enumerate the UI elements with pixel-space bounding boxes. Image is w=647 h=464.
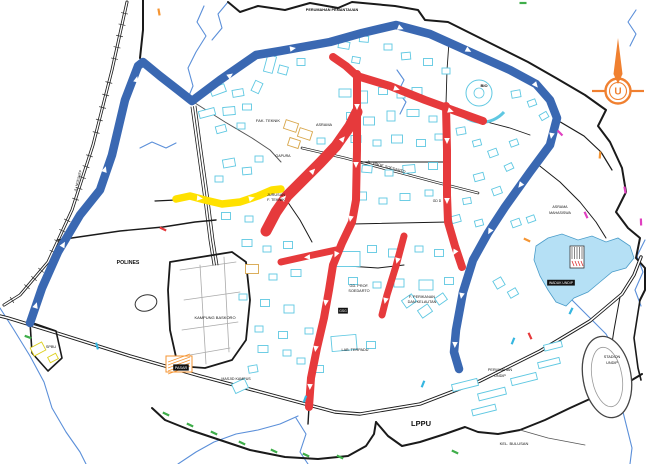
building-outline: [305, 328, 313, 334]
building-outline: [387, 111, 395, 121]
triple-road-a: [191, 107, 213, 265]
triple-road-b: [194, 107, 216, 266]
label-text: PASAR: [175, 366, 188, 370]
building-outline: [248, 365, 258, 373]
building-rect: [509, 139, 519, 147]
building-rect: [424, 59, 433, 66]
building-rect: [538, 357, 561, 368]
label-text: ASRAMA: [552, 205, 568, 209]
map-label-polines: POLINES: [117, 260, 140, 266]
building-outline: [222, 213, 231, 220]
building-rect: [425, 190, 433, 196]
building-rect: [246, 265, 259, 274]
building-rect: [248, 365, 258, 373]
map-tick: [160, 228, 166, 231]
building-rect: [245, 216, 253, 222]
map-label-soedarto: SOEDARTO: [348, 289, 369, 293]
lppu-boundary: [152, 408, 376, 459]
map-label-bio: BIO: [480, 83, 487, 88]
building-outline: [373, 282, 381, 288]
building-outline: [237, 123, 245, 129]
building-rect: [488, 148, 499, 158]
building-rect: [269, 274, 277, 280]
label-text: SPBU: [46, 345, 57, 349]
bio-circle-building: [466, 80, 492, 106]
building-outline: [418, 304, 433, 318]
east-road-1: [557, 120, 612, 170]
kampung-roads: [180, 257, 240, 364]
building-rect: [507, 288, 518, 299]
river: [628, 10, 636, 46]
building-outline: [362, 165, 373, 173]
map-tick: [512, 338, 515, 344]
map-tick: [600, 152, 601, 159]
building-outline: [284, 242, 293, 249]
label-text: F. TEKNIK: [267, 198, 285, 202]
building-rect: [243, 104, 252, 110]
building-outline: [463, 197, 472, 204]
label-text: GSG: [339, 309, 347, 313]
map-label-mahasiswa: MAHASISWA: [549, 211, 571, 215]
jurusan-south-road: [285, 198, 312, 242]
building-rect: [415, 246, 423, 252]
map-tick: [585, 212, 588, 218]
building-rect: [284, 305, 294, 313]
building-outline: [278, 65, 289, 75]
building-outline: [492, 186, 503, 196]
label-text: LPPU: [411, 419, 431, 428]
river: [188, 6, 206, 98]
building-outline: [384, 44, 392, 50]
building-outline: [255, 326, 263, 332]
map-tick: [524, 239, 530, 242]
building-rect: [387, 111, 395, 121]
building-rect: [279, 332, 288, 339]
building-outline: [452, 378, 479, 391]
east-road-2: [536, 163, 606, 238]
stadium-oval: [576, 332, 638, 421]
stadium-group: [576, 332, 638, 421]
building-outline: [442, 68, 450, 74]
building-rect: [407, 110, 419, 117]
building-rect: [429, 163, 438, 170]
building-rect: [368, 246, 377, 253]
building-outline: [246, 265, 259, 274]
building-rect: [222, 213, 231, 220]
building-rect: [339, 89, 351, 97]
building-rect: [215, 176, 223, 182]
building-outline: [472, 404, 497, 416]
building-outline: [283, 350, 291, 356]
map-label-undip: UNDIP: [494, 374, 506, 378]
building-rect: [373, 282, 381, 288]
building-rect: [463, 197, 472, 204]
right-south-boundary: [634, 300, 641, 380]
label-text: GD D: [433, 199, 442, 203]
building-outline: [297, 358, 305, 364]
building-outline: [263, 246, 271, 252]
building-outline: [239, 294, 247, 300]
label-text: GAPURA: [275, 154, 291, 158]
map-label-dan-kelautan: DAN KELAUTAN: [408, 300, 437, 304]
map-label-jurusan: JURUSAN: [267, 193, 285, 197]
building-rect: [237, 123, 245, 129]
building-outline: [392, 135, 403, 143]
building-rect: [297, 128, 312, 141]
building-rect: [456, 127, 466, 135]
building-rect: [472, 404, 497, 416]
label-text: SOEDARTO: [348, 289, 369, 293]
building-rect: [352, 56, 361, 63]
map-label-f-teknik: F. TEKNIK: [267, 198, 285, 202]
label-text: UNDIP: [494, 374, 506, 378]
map-label-lppu: LPPU: [411, 419, 431, 428]
building-outline: [245, 216, 253, 222]
east-cont-road: [483, 121, 530, 135]
building-rect: [305, 328, 313, 334]
building-outline: [261, 300, 270, 307]
building-outline: [435, 134, 443, 140]
building-rect: [435, 293, 448, 305]
map-tick: [422, 381, 425, 387]
roads-layer: [0, 0, 645, 459]
building-outline: [198, 108, 215, 119]
label-text: FAK. TEKNIK: [256, 118, 280, 123]
label-text: LAB. TERPADU: [341, 348, 368, 352]
map-tick: [558, 131, 563, 136]
map-label-perumahan-pemantauan: PERUMAHAN PEMANTAUAN: [306, 8, 359, 12]
label-text: UNDIP: [606, 361, 618, 365]
map-label-kel-bulusan: KEL. BULUSAN: [500, 441, 529, 446]
building-rect: [474, 219, 483, 227]
building-outline: [288, 137, 301, 148]
building-rect: [261, 300, 270, 307]
river: [0, 308, 86, 464]
building-outline: [429, 163, 438, 170]
map-label-gsg: GSG: [338, 308, 348, 314]
map-label-stadion: STADION: [604, 355, 621, 359]
label-text: ASRAMA: [316, 123, 333, 127]
building-rect: [198, 108, 215, 119]
building-outline: [435, 250, 444, 257]
building-rect: [419, 280, 433, 290]
building-outline: [417, 140, 426, 147]
building-rect: [429, 116, 437, 122]
label-text: MAHASISWA: [549, 211, 571, 215]
building-outline: [526, 215, 536, 223]
map-label-perumahan: PERUMAHAN: [488, 368, 513, 372]
building-rect: [239, 294, 247, 300]
building-rect: [379, 198, 387, 204]
triple-road-c: [196, 106, 218, 265]
building-outline: [352, 56, 361, 63]
building-rect: [263, 246, 271, 252]
building-outline: [429, 116, 437, 122]
loop-bottom-road: [352, 222, 448, 224]
map-tick: [569, 308, 572, 314]
map-tick: [271, 450, 277, 453]
building-outline: [379, 198, 387, 204]
building-outline: [493, 277, 505, 289]
building-rect: [442, 68, 450, 74]
label-text: JURUSAN: [267, 193, 285, 197]
building-rect: [223, 106, 236, 115]
building-rect: [435, 134, 443, 140]
label-text: F. PERIKANAN: [409, 295, 435, 299]
building-outline: [385, 170, 393, 176]
building-outline: [478, 387, 507, 401]
kampung-road: [224, 257, 229, 352]
building-outline: [435, 293, 448, 305]
building-rect: [283, 350, 291, 356]
building-outline: [425, 190, 433, 196]
building-outline: [474, 219, 483, 227]
building-rect: [392, 135, 403, 143]
building-rect: [435, 250, 444, 257]
building-rect: [232, 89, 244, 98]
building-outline: [407, 110, 419, 117]
rivers-layer: [0, 2, 645, 464]
building-outline: [242, 240, 252, 247]
campus-map-svg: PERUMAHAN PEMANTAUANFAK. TEKNIKASRAMAGAP…: [0, 0, 647, 464]
map-label-asrama: ASRAMA: [316, 123, 333, 127]
building-outline: [223, 106, 236, 115]
building-outline: [48, 353, 59, 363]
building-outline: [511, 90, 521, 98]
kampung-road: [180, 262, 236, 270]
building-outline: [400, 194, 410, 201]
compass-needle: [614, 38, 623, 84]
building-rect: [504, 163, 514, 172]
map-label-asrama: ASRAMA: [552, 205, 568, 209]
building-rect: [297, 59, 305, 66]
kampung-road: [184, 292, 240, 300]
route-yellow-connector: [176, 189, 281, 204]
building-outline: [297, 59, 305, 66]
building-outline: [297, 128, 312, 141]
building-outline: [527, 99, 537, 107]
building-outline: [243, 104, 252, 110]
building-rect: [452, 378, 479, 391]
polines-building: [133, 292, 158, 313]
compass-letter: U: [614, 87, 621, 98]
map-label-undip: UNDIP: [606, 361, 618, 365]
building-outline: [215, 124, 226, 133]
map-tick: [211, 432, 217, 435]
building-rect: [291, 270, 301, 277]
compass-north-icon: U: [592, 38, 644, 104]
building-rect: [451, 214, 462, 223]
map-label-lab-terpadu: LAB. TERPADU: [341, 348, 368, 352]
map-label-fak-teknik: FAK. TEKNIK: [256, 118, 280, 123]
kampung-boundary: [168, 252, 250, 368]
building-rect: [472, 139, 481, 147]
map-label-masjid-kampus: MASJID KAMPUS: [221, 377, 251, 381]
building-rect: [278, 65, 289, 75]
building-outline: [394, 279, 404, 287]
building-rect: [384, 44, 392, 50]
building-outline: [364, 117, 375, 125]
building-outline: [473, 172, 484, 181]
building-rect: [418, 304, 433, 318]
building-outline: [419, 280, 433, 290]
building-outline: [222, 158, 235, 168]
building-rect: [48, 353, 59, 363]
building-rect: [251, 80, 263, 93]
map-tick: [303, 454, 309, 457]
map-label-gapura: GAPURA: [275, 154, 291, 158]
label-text: PERUMAHAN: [488, 368, 513, 372]
building-rect: [297, 358, 305, 364]
building-outline: [258, 346, 268, 353]
building-rect: [242, 240, 252, 247]
building-outline: [538, 357, 561, 368]
building-rect: [417, 140, 426, 147]
building-outline: [284, 305, 294, 313]
river: [140, 142, 176, 148]
bulusan-road: [520, 430, 585, 445]
building-rect: [511, 372, 538, 385]
building-rect: [317, 138, 325, 144]
building-outline: [539, 111, 549, 120]
building-outline: [339, 89, 351, 97]
building-outline: [445, 278, 454, 285]
label-text: WADUK UNDIP: [549, 281, 574, 285]
route-red-branch: [382, 236, 404, 315]
campus-map: PERUMAHAN PEMANTAUANFAK. TEKNIKASRAMAGAP…: [0, 0, 647, 464]
building-outline: [504, 163, 514, 172]
building-rect: [364, 117, 375, 125]
label-text: BIO: [480, 83, 487, 88]
route-red-top: [357, 76, 483, 121]
building-rect: [400, 194, 410, 201]
map-tick: [452, 451, 458, 454]
map-label-pasar: PASAR: [173, 364, 189, 370]
building-outline: [368, 246, 377, 253]
building-rect: [288, 137, 301, 148]
building-outline: [373, 140, 381, 146]
label-text: KEL. BULUSAN: [500, 441, 529, 446]
building-outline: [401, 52, 411, 60]
map-tick: [96, 343, 98, 350]
building-rect: [493, 277, 505, 289]
building-outline: [251, 80, 263, 93]
building-outline: [291, 270, 301, 277]
building-rect: [222, 158, 235, 168]
building-outline: [269, 274, 277, 280]
building-outline: [456, 127, 466, 135]
building-outline: [451, 214, 462, 223]
label-text: GD. PROF.: [350, 284, 369, 288]
map-tick: [624, 187, 625, 194]
label-text: MASJID KAMPUS: [221, 377, 251, 381]
building-rect: [283, 120, 298, 133]
building-outline: [279, 332, 288, 339]
label-text: PERUMAHAN PEMANTAUAN: [306, 8, 359, 12]
map-tick: [163, 413, 169, 416]
building-rect: [215, 124, 226, 133]
building-rect: [478, 387, 507, 401]
building-rect: [255, 156, 263, 162]
kampung-road: [182, 322, 238, 330]
building-rect: [539, 111, 549, 120]
pasar-building: [166, 354, 192, 374]
building-rect: [385, 170, 393, 176]
building-rect: [284, 242, 293, 249]
building-rect: [242, 167, 252, 175]
kampung-road: [190, 348, 230, 355]
map-label-gd-d: GD D: [433, 199, 442, 203]
building-outline: [511, 218, 522, 228]
building-rect: [473, 172, 484, 181]
building-outline: [317, 138, 325, 144]
building-outline: [472, 139, 481, 147]
map-label-f-perikanan: F. PERIKANAN: [409, 295, 435, 299]
building-outline: [507, 288, 518, 299]
building-rect: [394, 279, 404, 287]
building-rect: [258, 346, 268, 353]
building-outline: [424, 59, 433, 66]
map-label-spbu: SPBU: [46, 345, 57, 349]
map-tick: [187, 424, 193, 427]
map-label-waduk-undip: WADUK UNDIP: [547, 280, 575, 286]
building-outline: [509, 139, 519, 147]
building-rect: [526, 215, 536, 223]
map-tick: [529, 333, 532, 339]
label-text: KAMPUNG BASKORO: [194, 315, 235, 320]
building-rect: [492, 186, 503, 196]
map-label-gd-prof: GD. PROF.: [350, 284, 369, 288]
map-tick: [239, 442, 245, 445]
building-outline: [242, 167, 252, 175]
building-outline: [511, 372, 538, 385]
map-tick: [158, 9, 159, 16]
building-outline: [488, 148, 499, 158]
building-rect: [511, 218, 522, 228]
building-rect: [527, 99, 537, 107]
building-rect: [445, 278, 454, 285]
label-text: STADION: [604, 355, 621, 359]
building-outline: [415, 246, 423, 252]
building-outline: [255, 156, 263, 162]
north-stub-road: [140, 0, 143, 58]
building-rect: [373, 140, 381, 146]
building-outline: [232, 89, 244, 98]
label-text: POLINES: [117, 260, 140, 266]
building-rect: [401, 52, 411, 60]
building-rect: [511, 90, 521, 98]
label-text: DAN KELAUTAN: [408, 300, 437, 304]
building-rect: [255, 326, 263, 332]
building-outline: [215, 176, 223, 182]
polines-north-road: [58, 220, 216, 240]
river: [212, 2, 228, 40]
building-rect: [362, 165, 373, 173]
building-outline: [283, 120, 298, 133]
map-label-kampung-baskoro: KAMPUNG BASKORO: [194, 315, 235, 320]
